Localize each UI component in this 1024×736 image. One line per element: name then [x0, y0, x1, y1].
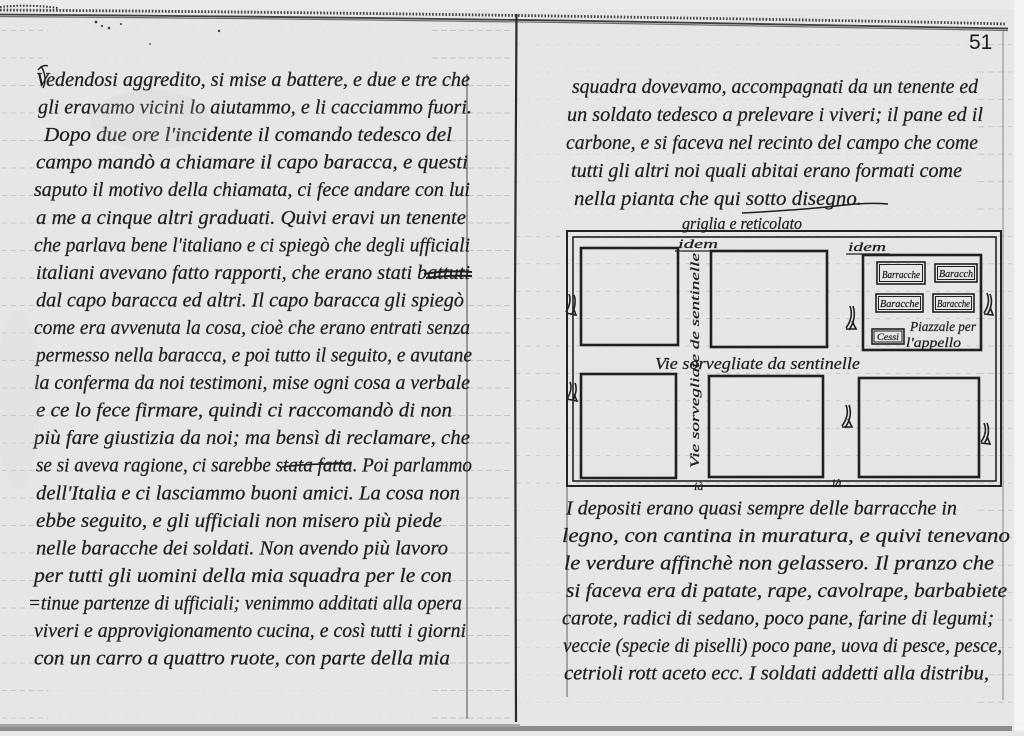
- svg-text:idem: idem: [678, 236, 718, 251]
- svg-text:la conferma da noi testimoni,: la conferma da noi testimoni, mise ogni …: [34, 372, 470, 394]
- svg-text:Piazzale per: Piazzale per: [909, 320, 976, 335]
- svg-text:con un carro a quattro ruote,: con un carro a quattro ruote, con parte …: [34, 648, 450, 670]
- svg-text:Barracche: Barracche: [882, 269, 920, 281]
- svg-text:che parlava bene l'italiano e: che parlava bene l'italiano e ci spiegò …: [34, 234, 470, 256]
- svg-text:dell'Italia e ci lasciammo buo: dell'Italia e ci lasciammo buoni amici. …: [36, 482, 460, 504]
- svg-text:campo mandò a chiamare il capo: campo mandò a chiamare il capo baracca, …: [36, 152, 468, 174]
- svg-text:veccie (specie di piselli) poc: veccie (specie di piselli) poco pane, uo…: [563, 635, 1002, 657]
- svg-text:se si aveva ragione, ci sarebb: se si aveva ragione, ci sarebbe stata fa…: [36, 455, 472, 477]
- svg-text:squadra dovevamo, accompagnati: squadra dovevamo, accompagnati da un ten…: [572, 76, 979, 98]
- svg-text:idem: idem: [848, 239, 886, 254]
- svg-text:51: 51: [969, 31, 992, 54]
- svg-text:ià: ià: [694, 479, 703, 493]
- svg-text:Vie sorvegliate da sentinel: Vie sorvegliate da sentinelle: [655, 354, 860, 373]
- svg-text:più fare giustizia da noi; ma: più fare giustizia da noi; ma bensì di r…: [32, 427, 470, 449]
- svg-text:italiani avevano fatto rapport: italiani avevano fatto rapporti, che era…: [36, 262, 470, 284]
- svg-text:cetrioli rott aceto ecc. I sol: cetrioli rott aceto ecc. I soldati addet…: [564, 663, 989, 685]
- svg-text:Baracche: Baracche: [880, 299, 919, 310]
- svg-text:un soldato tedesco a prelevare: un soldato tedesco a prelevare i viveri;…: [567, 104, 983, 126]
- svg-text:per tutti gli uomini della mia: per tutti gli uomini della mia squadra p…: [32, 565, 452, 587]
- svg-text:nella pianta che qui sotto dis: nella pianta che qui sotto disegno.: [574, 188, 862, 210]
- svg-text:Baracche: Baracche: [937, 299, 970, 310]
- svg-text:legno, con cantina in muratura: legno, con cantina in muratura, e quivi …: [562, 525, 1010, 547]
- svg-text:I depositi erano quasi sempre: I depositi erano quasi sempre delle barr…: [565, 498, 957, 520]
- svg-text:si faceva era di patate, rape,: si faceva era di patate, rape, cavolrape…: [566, 580, 1007, 602]
- svg-text:viveri e approvigionamento cuc: viveri e approvigionamento cucina, e cos…: [34, 620, 466, 642]
- svg-text:a me a cinque altri graduati.: a me a cinque altri graduati. Quivi erav…: [36, 207, 466, 229]
- svg-text:ebbe seguito, e gli ufficiali: ebbe seguito, e gli ufficiali non misero…: [36, 510, 442, 532]
- svg-text:nelle baracche dei soldati. No: nelle baracche dei soldati. Non avendo p…: [36, 537, 448, 559]
- svg-text:Baracch: Baracch: [939, 269, 973, 280]
- svg-text:permesso nella baracca, e poi: permesso nella baracca, e poi tutto il s…: [34, 345, 472, 367]
- svg-text:dal capo baracca ed altri. Il: dal capo baracca ed altri. Il capo barac…: [36, 289, 464, 311]
- svg-text:Vie sorvegliate de sentinelle: Vie sorvegliate de sentinelle: [687, 253, 702, 468]
- svg-text:Cessi: Cessi: [877, 333, 899, 343]
- svg-text:l'appello: l'appello: [906, 336, 961, 351]
- svg-text:saputo il motivo della chiamat: saputo il motivo della chiamata, ci fece…: [34, 179, 470, 201]
- svg-text:Vedendosi aggredito, si mise a: Vedendosi aggredito, si mise a battere, …: [36, 69, 470, 91]
- svg-text:come era avvenuta la cosa, cio: come era avvenuta la cosa, cioè che eran…: [34, 317, 470, 339]
- svg-text:e ce lo fece firmare, quindi c: e ce lo fece firmare, quindi ci raccoman…: [36, 400, 452, 422]
- svg-text:le verdure affinchè non gelass: le verdure affinchè non gelassero. Il pr…: [564, 553, 994, 575]
- svg-text:carbone, e si faceva nel recin: carbone, e si faceva nel recinto del cam…: [566, 132, 978, 154]
- svg-text:ià: ià: [832, 476, 841, 490]
- svg-text:tutti gli altri noi quali abit: tutti gli altri noi quali abitai erano f…: [571, 160, 962, 182]
- svg-text:carote, radici di sedano, poco: carote, radici di sedano, poco pane, far…: [562, 608, 994, 630]
- svg-text:=tinue partenze di ufficiali;: =tinue partenze di ufficiali; venimmo ad…: [28, 592, 462, 614]
